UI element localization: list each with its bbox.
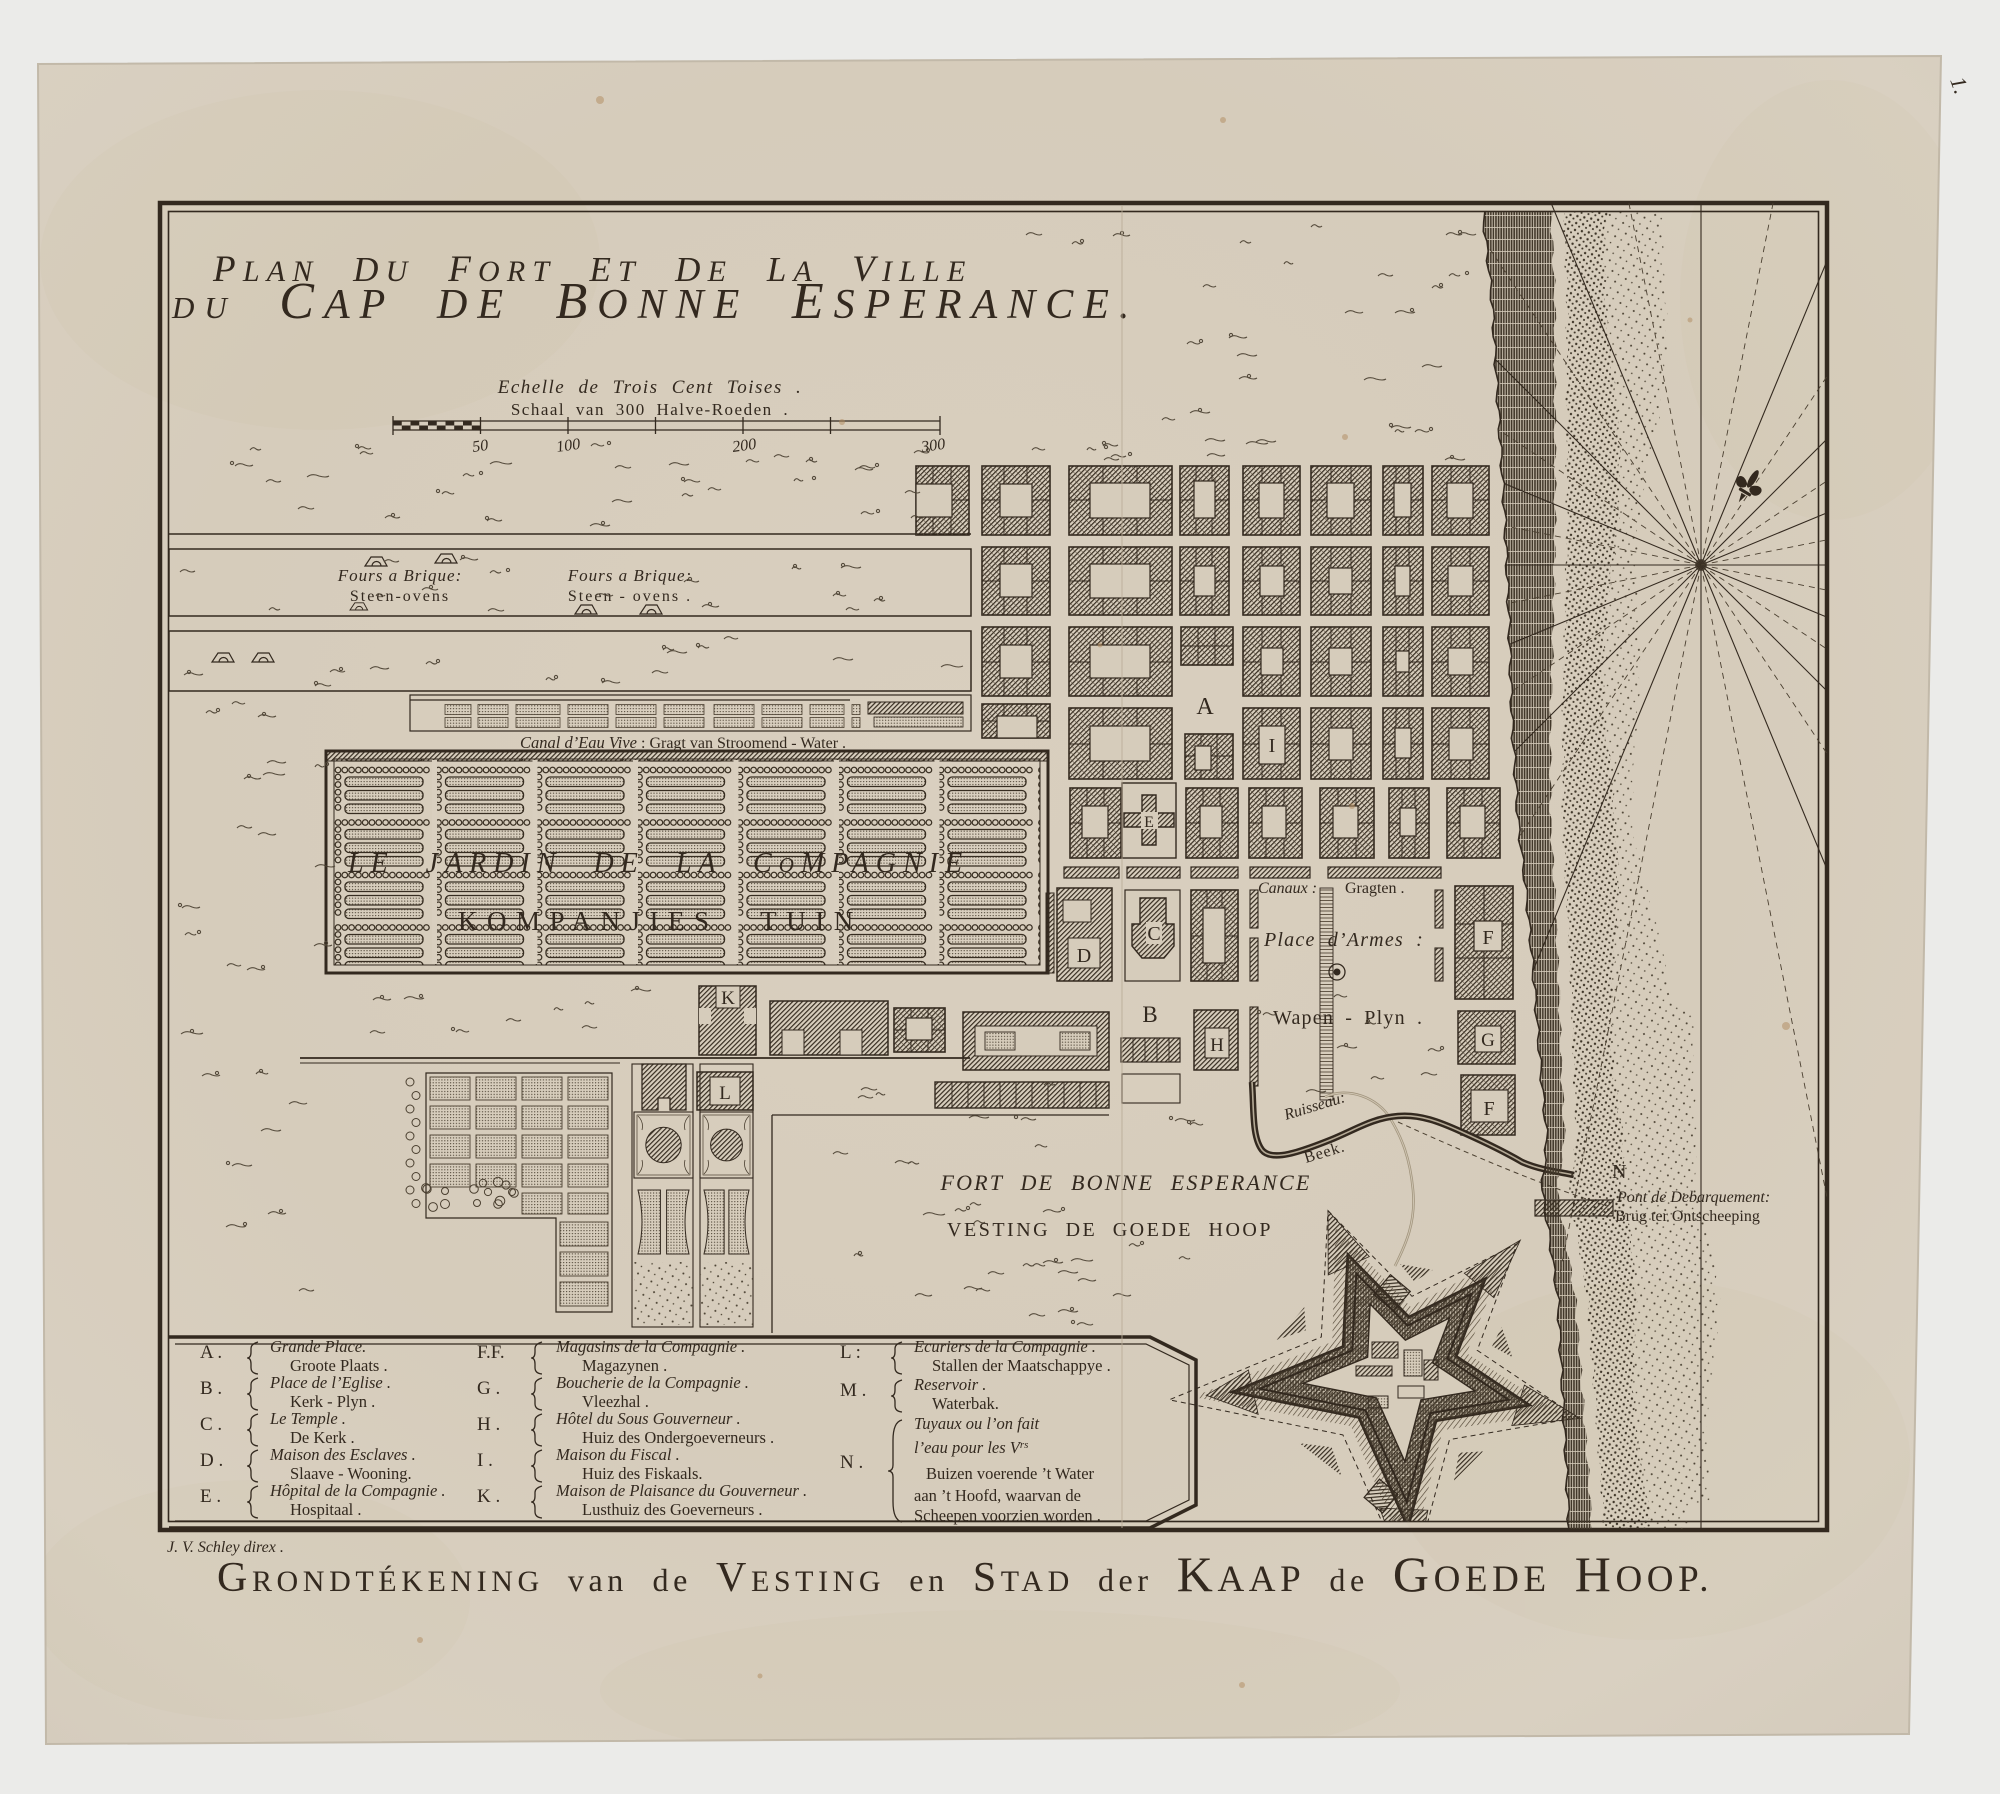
svg-text:KOMPANJIES TUIN: KOMPANJIES TUIN xyxy=(458,906,863,936)
svg-text:G .: G . xyxy=(477,1378,500,1399)
svg-text:D .: D . xyxy=(200,1450,223,1471)
svg-text:Echelle de Trois Cent Toises .: Echelle de Trois Cent Toises . xyxy=(497,377,802,398)
svg-text:Maison du Fiscal .: Maison du Fiscal . xyxy=(555,1445,680,1464)
svg-text:Grande Place.: Grande Place. xyxy=(270,1337,366,1356)
svg-text:A: A xyxy=(1196,694,1214,720)
svg-text:D: D xyxy=(1077,945,1091,967)
svg-text:C: C xyxy=(1147,923,1160,945)
svg-text:B: B xyxy=(1142,1002,1157,1027)
svg-text:I .: I . xyxy=(477,1450,493,1471)
svg-text:Hôpital de la Compagnie .: Hôpital de la Compagnie . xyxy=(269,1481,446,1500)
svg-text:Lusthuiz des Goeverneurs .: Lusthuiz des Goeverneurs . xyxy=(582,1500,763,1519)
svg-text:H: H xyxy=(1210,1035,1224,1056)
svg-text:DU CAP DE BONNE ESPERANCE.: DU CAP DE BONNE ESPERANCE. xyxy=(171,273,1139,330)
svg-text:M .: M . xyxy=(840,1380,866,1401)
svg-text:Buizen voerende ’t Water: Buizen voerende ’t Water xyxy=(926,1464,1095,1483)
svg-text:Reservoir .: Reservoir . xyxy=(913,1375,986,1394)
svg-text:L: L xyxy=(719,1083,731,1104)
svg-text:C .: C . xyxy=(200,1414,222,1435)
svg-text:100: 100 xyxy=(555,436,581,456)
svg-text:K .: K . xyxy=(477,1486,500,1507)
svg-text:Schaal van 300 Halve-Roeden .: Schaal van 300 Halve-Roeden . xyxy=(511,400,789,419)
svg-text:Maison de Plaisance du Gouvern: Maison de Plaisance du Gouverneur . xyxy=(555,1481,807,1500)
svg-text:Magasins de la Compagnie .: Magasins de la Compagnie . xyxy=(555,1337,745,1356)
svg-text:N: N xyxy=(1612,1161,1626,1183)
svg-text:Pont de Debarquement:: Pont de Debarquement: xyxy=(1616,1189,1770,1206)
svg-text:50: 50 xyxy=(471,437,489,456)
svg-text:Place d’Armes :: Place d’Armes : xyxy=(1263,929,1424,951)
svg-text:aan ’t Hoofd, waarvan de: aan ’t Hoofd, waarvan de xyxy=(914,1486,1081,1505)
svg-text:LE JARDIN DE LA COMPAGNIE: LE JARDIN DE LA COMPAGNIE xyxy=(347,848,969,879)
svg-text:Stallen der Maatschappye .: Stallen der Maatschappye . xyxy=(932,1356,1111,1375)
svg-text:Waterbak.: Waterbak. xyxy=(932,1394,999,1413)
svg-text:N .: N . xyxy=(840,1452,863,1473)
svg-text:Gragten .: Gragten . xyxy=(1345,880,1405,897)
svg-text:FORT DE BONNE ESPERANCE: FORT DE BONNE ESPERANCE xyxy=(939,1170,1311,1195)
svg-text:Maison des Esclaves .: Maison des Esclaves . xyxy=(269,1445,416,1464)
svg-text:G: G xyxy=(1481,1030,1495,1051)
svg-text:I: I xyxy=(1269,735,1276,757)
svg-text:300: 300 xyxy=(919,436,946,456)
svg-text:B .: B . xyxy=(200,1378,222,1399)
svg-text:J. V. Schley direx .: J. V. Schley direx . xyxy=(167,1539,284,1556)
svg-text:l’eau pour les Vrs: l’eau pour les Vrs xyxy=(914,1438,1028,1457)
svg-text:Fours a Brique:: Fours a Brique: xyxy=(337,566,463,585)
svg-text:Fours a Brique:: Fours a Brique: xyxy=(567,566,693,585)
svg-text:Wapen - Plyn .: Wapen - Plyn . xyxy=(1273,1007,1423,1029)
svg-text:Scheepen voorzien worden .: Scheepen voorzien worden . xyxy=(914,1506,1101,1525)
svg-text:L :: L : xyxy=(840,1342,861,1363)
svg-text:Canaux :: Canaux : xyxy=(1258,880,1317,897)
svg-text:Canal d’Eau Vive : Gragt van S: Canal d’Eau Vive : Gragt van Stroomend -… xyxy=(520,733,846,752)
svg-text:Tuyaux ou l’on fait: Tuyaux ou l’on fait xyxy=(914,1414,1040,1433)
svg-text:Steen - ovens .: Steen - ovens . xyxy=(568,588,692,605)
svg-text:200: 200 xyxy=(731,436,757,456)
svg-text:H .: H . xyxy=(477,1414,500,1435)
svg-text:K: K xyxy=(721,988,735,1009)
svg-text:Steen-ovens: Steen-ovens xyxy=(350,588,450,605)
svg-text:F: F xyxy=(1482,927,1493,949)
svg-text:Boucherie de la Compagnie .: Boucherie de la Compagnie . xyxy=(556,1373,749,1392)
svg-text:Place de l’Eglise .: Place de l’Eglise . xyxy=(269,1373,391,1392)
svg-text:F: F xyxy=(1483,1098,1494,1120)
svg-text:Ecuriers de la Compagnie .: Ecuriers de la Compagnie . xyxy=(913,1337,1096,1356)
svg-text:E .: E . xyxy=(200,1486,221,1507)
svg-text:F.F.: F.F. xyxy=(477,1342,505,1363)
svg-text:Hospitaal .: Hospitaal . xyxy=(290,1500,362,1519)
svg-text:VESTING DE GOEDE HOOP: VESTING DE GOEDE HOOP xyxy=(947,1219,1273,1241)
svg-text:A .: A . xyxy=(200,1342,222,1363)
svg-text:Le Temple .: Le Temple . xyxy=(269,1409,346,1428)
svg-text:Hôtel du Sous Gouverneur .: Hôtel du Sous Gouverneur . xyxy=(555,1409,741,1428)
svg-text:E: E xyxy=(1144,814,1154,831)
svg-text:Brug ter Ontscheeping: Brug ter Ontscheeping xyxy=(1615,1208,1760,1225)
